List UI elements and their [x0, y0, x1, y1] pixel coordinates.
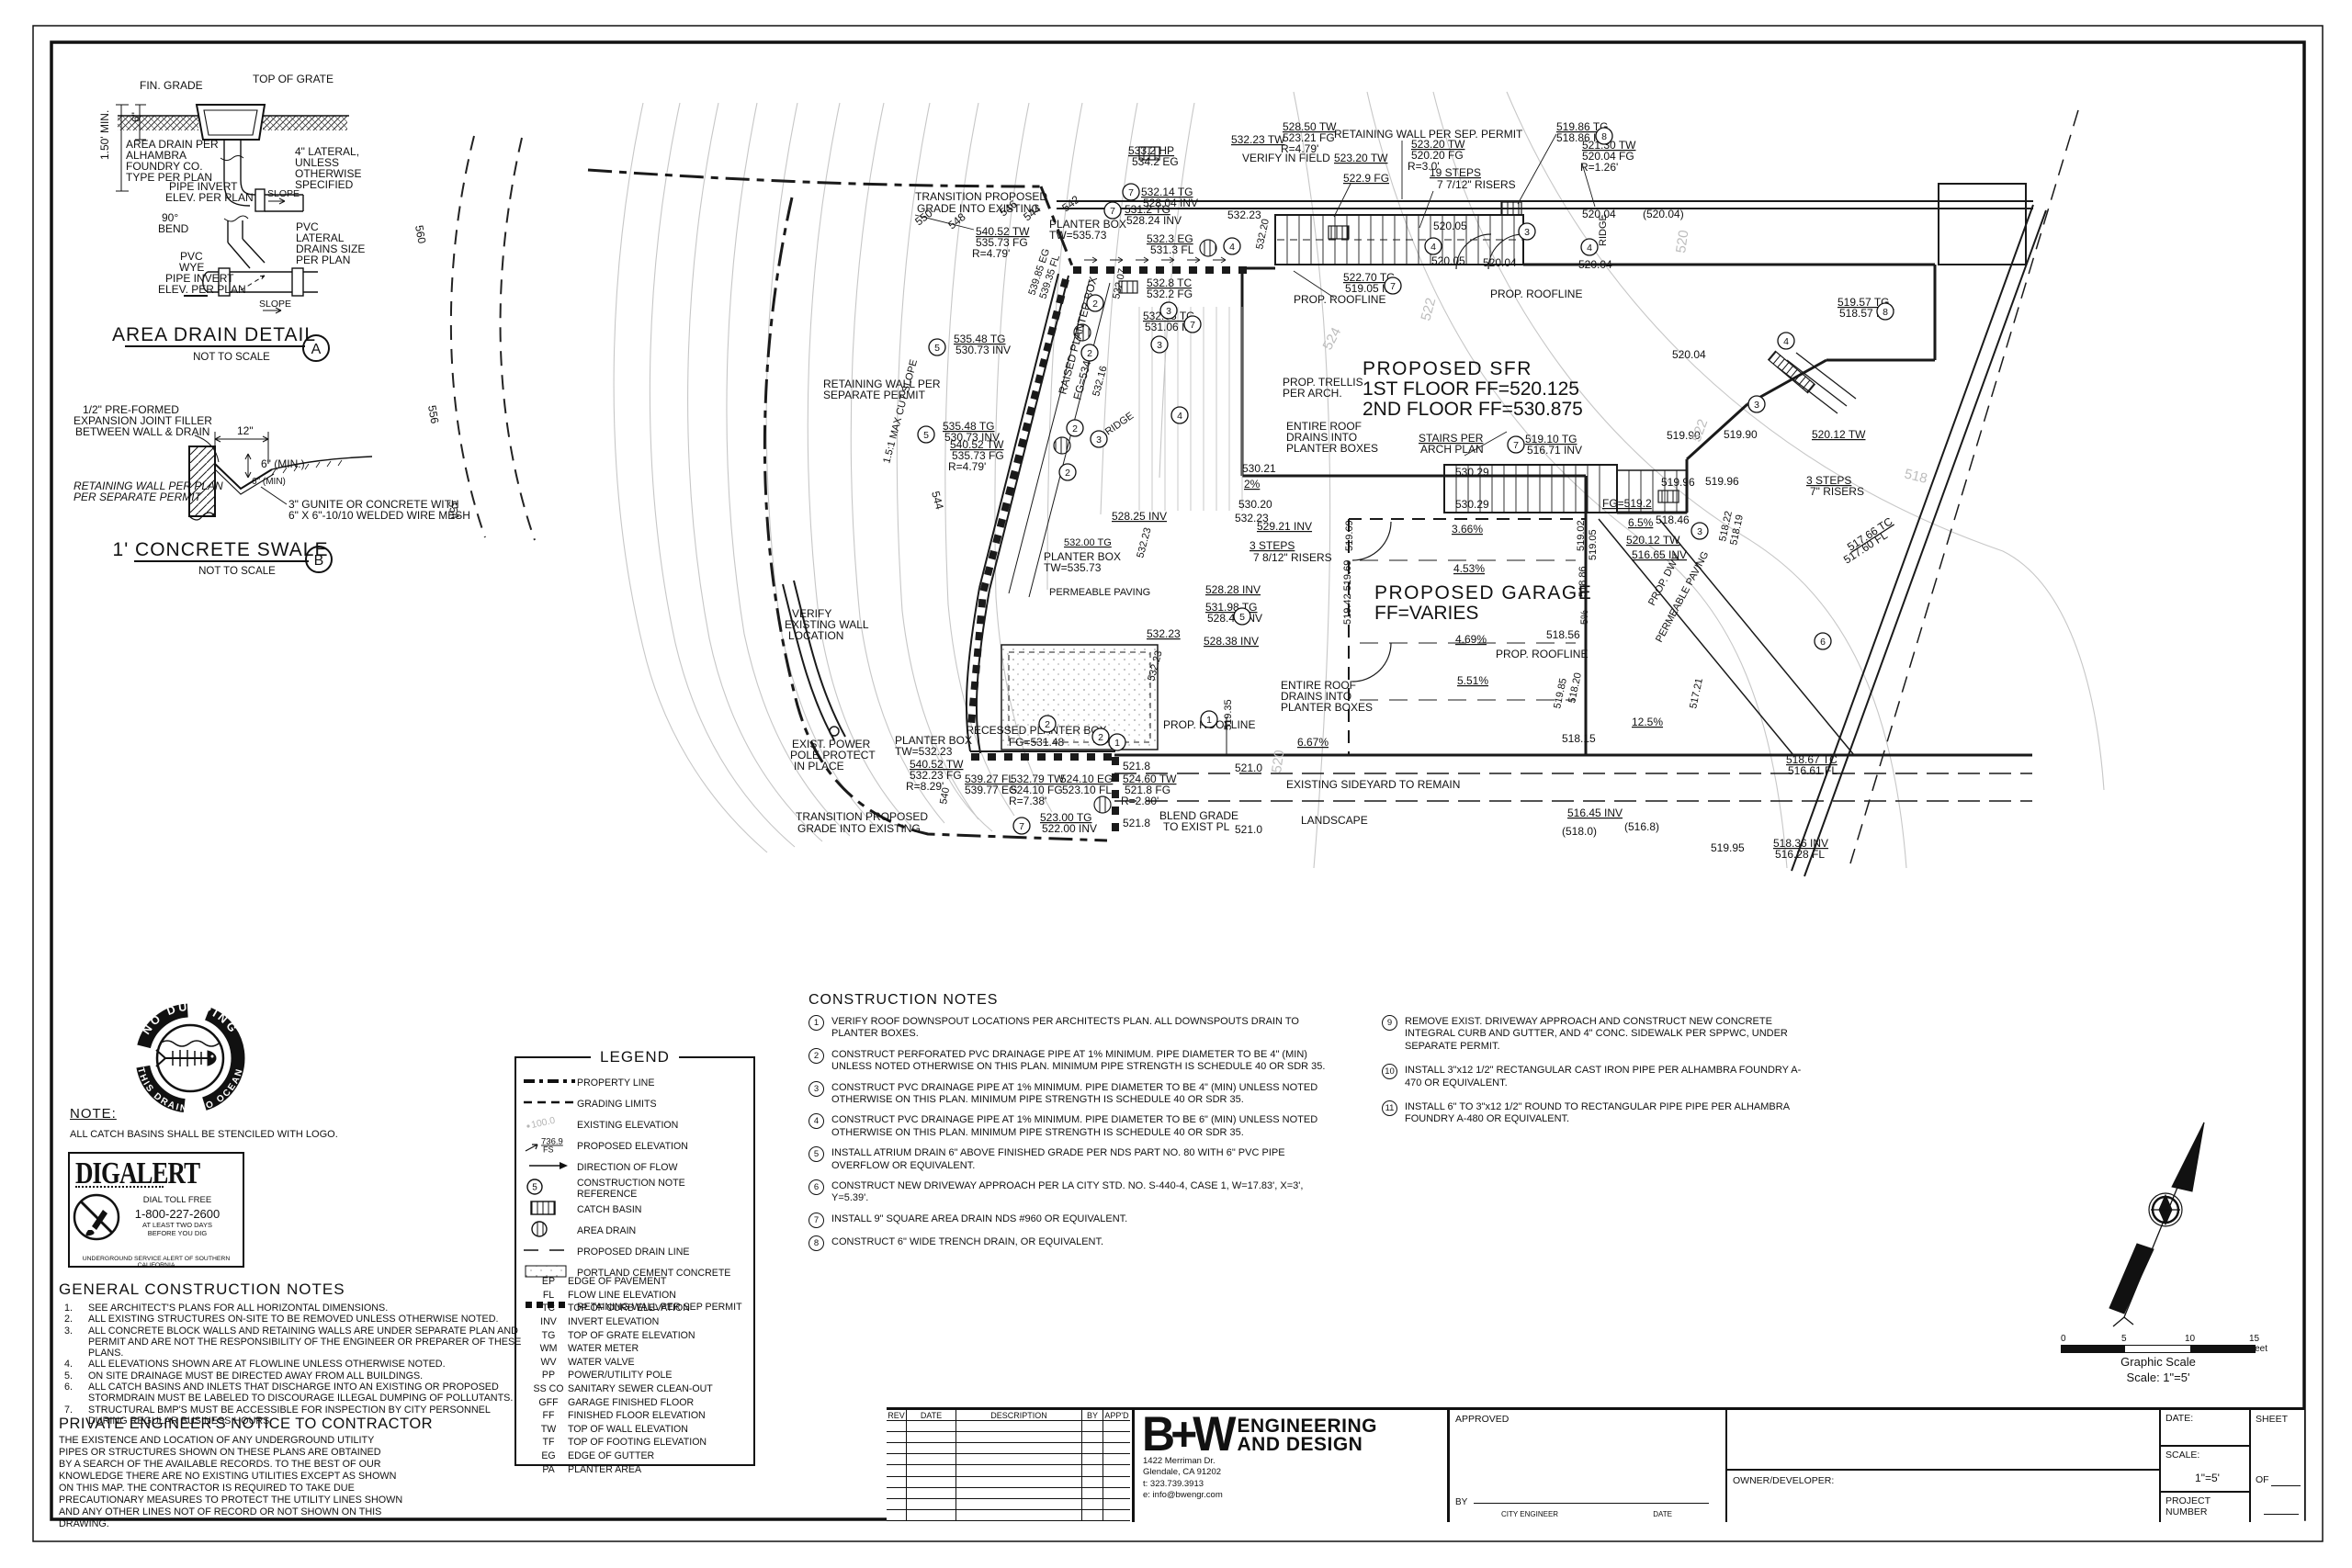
- plan-label: 521.0: [1235, 823, 1262, 836]
- svg-text:1: 1: [1114, 738, 1120, 749]
- plan-label: 520.05: [1433, 220, 1467, 232]
- plan-label: 532.23: [1227, 209, 1261, 221]
- general-note-text: SEE ARCHITECT'S PLANS FOR ALL HORIZONTAL…: [88, 1303, 527, 1314]
- general-note-number: 4.: [59, 1359, 88, 1370]
- note-ref-marker: 3: [1748, 396, 1765, 412]
- revision-table: REVDATEDESCRIPTIONBYAPP'D: [887, 1410, 1132, 1522]
- legend-item-label: PROPERTY LINE: [577, 1078, 654, 1089]
- sheet-of-line: [2271, 1485, 2301, 1486]
- construction-note-number: 6: [808, 1179, 824, 1195]
- legend-item: AREA DRAIN: [524, 1221, 750, 1242]
- note-ref-marker: 5: [929, 339, 945, 355]
- rev-cell: [1082, 1477, 1103, 1488]
- plan-label: 516.28 FL: [1775, 848, 1825, 861]
- plan-label: 518.20: [1566, 671, 1584, 704]
- note-ref-marker: 2: [1067, 420, 1083, 436]
- general-note-text: ALL CATCH BASINS AND INLETS THAT DISCHAR…: [88, 1382, 527, 1404]
- general-note-number: 3.: [59, 1325, 88, 1359]
- sheet-block: SHEET OF: [2249, 1410, 2304, 1522]
- svg-text:7: 7: [1513, 440, 1519, 451]
- plan-label: PROP. ROOFLINE: [1496, 648, 1588, 660]
- rev-cell: [956, 1499, 1082, 1510]
- note-ref-marker: 3: [1160, 302, 1177, 319]
- engineer-notice-title: PRIVATE ENGINEER'S NOTICE TO CONTRACTOR: [59, 1416, 527, 1433]
- abbreviation-key: INV: [529, 1316, 568, 1327]
- legend-abbreviation: TGTOP OF GRATE ELEVATION: [529, 1328, 750, 1342]
- notice-line: BY A SEARCH OF THE AVAILABLE RECORDS. TO…: [59, 1459, 527, 1471]
- legend-abbreviation: WVWATER VALVE: [529, 1356, 750, 1370]
- construction-note-text: INSTALL 6" TO 3"x12 1/2" ROUND TO RECTAN…: [1405, 1101, 1809, 1126]
- plan-label: 3.66%: [1452, 523, 1483, 536]
- abbreviation-key: FF: [529, 1410, 568, 1421]
- note-ref-marker: 8: [1877, 303, 1894, 320]
- digalert-box: DIGALERT DIAL TOLL FREE 1-800-227-2600 A…: [68, 1152, 244, 1268]
- approved-date-label: DATE: [1653, 1510, 1672, 1518]
- legend-item-label: CONSTRUCTION NOTE REFERENCE: [577, 1179, 696, 1199]
- svg-text:1: 1: [1206, 715, 1212, 726]
- plan-label: 6.5%: [1628, 516, 1654, 529]
- general-note-item: 1.SEE ARCHITECT'S PLANS FOR ALL HORIZONT…: [59, 1303, 555, 1314]
- construction-note-text: CONSTRUCT PVC DRAINAGE PIPE AT 1% MINIMU…: [831, 1082, 1328, 1107]
- area-drain-label: ELEV. PER PLAN: [158, 283, 246, 296]
- approved-signature-line: [1474, 1503, 1709, 1504]
- plan-label: 5.51%: [1457, 674, 1488, 687]
- plan-label: 520.12 TW: [1626, 534, 1680, 547]
- legend-symbol-pl: [524, 1073, 577, 1094]
- note-ref-marker: 2: [1081, 344, 1098, 361]
- legend-symbol-ee: 100.0: [524, 1115, 577, 1136]
- rev-header-cell: REV: [887, 1410, 907, 1421]
- legend-symbol-nr: 5: [524, 1179, 577, 1200]
- abbreviation-key: TG: [529, 1330, 568, 1341]
- rev-cell: [907, 1421, 956, 1432]
- note-ref-marker: 7: [1104, 202, 1121, 219]
- plan-label: 528.25 INV: [1112, 510, 1167, 523]
- plan-label: LANDSCAPE: [1301, 814, 1368, 827]
- plan-label: 520.12 TW: [1812, 428, 1866, 441]
- rev-cell: [907, 1432, 956, 1443]
- legend-abbreviation: TCTOP OF CURB ELEVATION: [529, 1302, 750, 1315]
- legend-item-label: EXISTING ELEVATION: [577, 1121, 678, 1131]
- legend-item-label: CATCH BASIN: [577, 1205, 641, 1215]
- abbreviation-value: TOP OF CURB ELEVATION: [568, 1303, 690, 1314]
- note-ref-marker: 1: [1201, 711, 1217, 728]
- construction-note-number: 3: [808, 1081, 824, 1097]
- abbreviation-key: FL: [529, 1290, 568, 1301]
- legend-item-label: DIRECTION OF FLOW: [577, 1163, 677, 1173]
- construction-note-number: 1: [808, 1015, 824, 1031]
- abbreviation-key: EG: [529, 1450, 568, 1461]
- construction-note-text: INSTALL 3"x12 1/2" RECTANGULAR CAST IRON…: [1405, 1065, 1809, 1089]
- plan-label: TRANSITION PROPOSED: [915, 190, 1047, 203]
- plan-label: 524: [1320, 325, 1345, 353]
- svg-text:5: 5: [1239, 612, 1245, 623]
- construction-note-item: 5INSTALL ATRIUM DRAIN 6" ABOVE FINISHED …: [808, 1147, 1396, 1172]
- note-ref-marker: 3: [1519, 223, 1535, 240]
- scale-value: Scale: 1"=5': [2061, 1371, 2256, 1384]
- construction-note-text: CONSTRUCT 6" WIDE TRENCH DRAIN, OR EQUIV…: [831, 1236, 1328, 1251]
- rev-cell: [956, 1421, 1082, 1432]
- area-drain-label: SPECIFIED: [295, 178, 354, 191]
- abbreviation-value: WATER METER: [568, 1343, 639, 1354]
- rev-cell: [907, 1443, 956, 1454]
- swale-label: 12": [237, 424, 254, 437]
- plan-label: 540: [938, 786, 952, 805]
- svg-text:FS: FS: [543, 1145, 554, 1154]
- construction-note-item: 2CONSTRUCT PERFORATED PVC DRAINAGE PIPE …: [808, 1049, 1396, 1074]
- scale-box: SCALE: 1"=5': [2161, 1447, 2249, 1493]
- note-title: NOTE:: [70, 1106, 338, 1122]
- plan-label: PERMEABLE PAVING: [1049, 587, 1150, 598]
- plan-label: 518: [1903, 466, 1928, 487]
- project-label-2: NUMBER: [2165, 1506, 2249, 1517]
- legend-symbol-gl: [524, 1094, 577, 1115]
- plan-label: 530.21: [1242, 462, 1276, 475]
- detail-a-subtitle: NOT TO SCALE: [193, 352, 270, 363]
- plan-label: 1ST FLOOR FF=520.125: [1363, 378, 1579, 400]
- general-note-number: 2.: [59, 1314, 88, 1325]
- general-note-item: 6.ALL CATCH BASINS AND INLETS THAT DISCH…: [59, 1382, 555, 1404]
- abbreviation-value: EDGE OF PAVEMENT: [568, 1276, 666, 1287]
- construction-note-text: CONSTRUCT PERFORATED PVC DRAINAGE PIPE A…: [831, 1049, 1328, 1074]
- plan-label: 518.46: [1656, 513, 1690, 526]
- legend-item-label: PROPOSED ELEVATION: [577, 1142, 688, 1152]
- plan-label: 519.95: [1711, 841, 1745, 854]
- construction-note-text: VERIFY ROOF DOWNSPOUT LOCATIONS PER ARCH…: [831, 1016, 1328, 1041]
- construction-note-number: 2: [808, 1048, 824, 1064]
- detail-a-title: AREA DRAIN DETAIL: [112, 324, 316, 345]
- notice-line: PIPES OR STRUCTURES SHOWN ON THESE PLANS…: [59, 1447, 527, 1459]
- construction-note-item: 1VERIFY ROOF DOWNSPOUT LOCATIONS PER ARC…: [808, 1016, 1396, 1041]
- legend-abbreviation: EGEDGE OF GUTTER: [529, 1450, 750, 1463]
- plan-label: FG=531.48: [1009, 736, 1065, 749]
- svg-text:3: 3: [1754, 400, 1759, 411]
- rev-header-cell: DATE: [907, 1410, 956, 1421]
- note-ref-marker: 4: [1778, 333, 1794, 349]
- plan-label: 532.23 TW: [1231, 133, 1285, 146]
- company-logo: B+W: [1142, 1413, 1232, 1456]
- svg-text:4: 4: [1783, 336, 1789, 347]
- construction-note-number: 10: [1382, 1064, 1397, 1079]
- plan-label: 521.8: [1123, 760, 1150, 773]
- plan-label: TRANSITION PROPOSED: [796, 810, 928, 823]
- digalert-when1: AT LEAST TWO DAYS: [123, 1221, 232, 1229]
- abbreviation-value: INVERT ELEVATION: [568, 1316, 659, 1327]
- plan-label: 521.0: [1235, 761, 1262, 774]
- engineer-notice: PRIVATE ENGINEER'S NOTICE TO CONTRACTOR …: [59, 1416, 527, 1530]
- svg-text:7: 7: [1128, 187, 1134, 198]
- rev-cell: [1103, 1499, 1130, 1510]
- plan-label: 12.5%: [1632, 716, 1663, 728]
- engineer-notice-body: THE EXISTENCE AND LOCATION OF ANY UNDERG…: [59, 1435, 527, 1530]
- note-ref-marker: 7: [1385, 277, 1401, 294]
- approved-by-label: BY: [1455, 1497, 1467, 1507]
- note-ref-marker: 2: [1087, 295, 1103, 311]
- plan-label: 522: [1418, 296, 1439, 322]
- plan-label: 6.67%: [1297, 736, 1329, 749]
- plan-label: 516.71 INV: [1527, 444, 1582, 457]
- legend-abbreviation: WMWATER METER: [529, 1342, 750, 1356]
- plan-label: 530.29: [1455, 466, 1489, 479]
- legend-item-label: GRADING LIMITS: [577, 1100, 657, 1110]
- notice-line: DRAWING.: [59, 1518, 527, 1530]
- plan-label: 522.9 FG: [1343, 172, 1389, 185]
- construction-note-text: CONSTRUCT NEW DRIVEWAY APPROACH PER LA C…: [831, 1180, 1328, 1205]
- plan-label: FG=519.2: [1602, 497, 1652, 510]
- area-drain-label: PER PLAN: [296, 254, 350, 266]
- plan-label: PROP. ROOFLINE: [1294, 293, 1385, 306]
- note-ref-marker: 3: [1091, 431, 1107, 447]
- construction-note-number: 5: [808, 1146, 824, 1162]
- svg-text:3: 3: [1697, 526, 1702, 537]
- svg-text:100.0: 100.0: [530, 1115, 556, 1131]
- plan-label: R=4.79': [948, 460, 986, 473]
- rev-cell: [956, 1477, 1082, 1488]
- abbreviation-value: EDGE OF GUTTER: [568, 1450, 654, 1461]
- rev-cell: [887, 1499, 907, 1510]
- rev-header-cell: BY: [1082, 1410, 1103, 1421]
- construction-note-item: 6CONSTRUCT NEW DRIVEWAY APPROACH PER LA …: [808, 1180, 1396, 1205]
- construction-note-item: 3CONSTRUCT PVC DRAINAGE PIPE AT 1% MINIM…: [808, 1082, 1396, 1107]
- approved-block: APPROVED BY CITY ENGINEER DATE: [1447, 1410, 1725, 1522]
- plan-label: FF=VARIES: [1374, 603, 1478, 624]
- area-drain-label: BEND: [158, 222, 189, 235]
- plan-label: 530.29: [1455, 498, 1489, 511]
- plan-label: 7 8/12" RISERS: [1253, 551, 1332, 564]
- note-text: ALL CATCH BASINS SHALL BE STENCILED WITH…: [70, 1129, 338, 1140]
- rev-cell: [1103, 1432, 1130, 1443]
- svg-text:2: 2: [1092, 299, 1098, 310]
- scale-bar: [2061, 1345, 2256, 1353]
- svg-text:7: 7: [1190, 320, 1195, 331]
- legend-symbol-pe: 736.9FS: [524, 1136, 577, 1157]
- construction-note-item: 9REMOVE EXIST. DRIVEWAY APPROACH AND CON…: [1382, 1016, 1823, 1053]
- plan-label: 5%: [1579, 610, 1590, 625]
- general-construction-notes: GENERAL CONSTRUCTION NOTES 1.SEE ARCHITE…: [59, 1280, 555, 1427]
- general-note-text: ALL EXISTING STRUCTURES ON-SITE TO BE RE…: [88, 1314, 527, 1325]
- plan-label: 517.21: [1688, 677, 1705, 709]
- swale-label: PER SEPARATE PERMIT: [73, 491, 203, 503]
- plan-label: RIDGE: [1103, 411, 1136, 438]
- plan-label: 534.2 EG: [1132, 155, 1179, 168]
- plan-label: PLANTER BOXES: [1281, 701, 1373, 714]
- abbreviation-value: WATER VALVE: [568, 1357, 635, 1368]
- general-notes-list: 1.SEE ARCHITECT'S PLANS FOR ALL HORIZONT…: [59, 1303, 555, 1427]
- abbreviation-value: GARAGE FINISHED FLOOR: [568, 1397, 694, 1408]
- rev-header-cell: APP'D: [1103, 1410, 1130, 1421]
- rev-cell: [956, 1510, 1082, 1521]
- construction-note-item: 10INSTALL 3"x12 1/2" RECTANGULAR CAST IR…: [1382, 1065, 1823, 1089]
- area-drain-label: TOP OF GRATE: [253, 73, 334, 85]
- svg-text:3: 3: [1096, 434, 1102, 446]
- rev-cell: [907, 1488, 956, 1499]
- rev-cell: [1103, 1510, 1130, 1521]
- rev-cell: [1103, 1465, 1130, 1476]
- grading-plan-sheet: AREA DRAIN DETAIL NOT TO SCALE A 1' CONC…: [0, 0, 2352, 1568]
- rev-cell: [956, 1488, 1082, 1499]
- scale-tick-label: 0: [2061, 1334, 2066, 1344]
- approved-label: APPROVED: [1455, 1414, 1509, 1425]
- area-drain-label: 1.50' MIN.: [98, 110, 111, 160]
- plan-label: 518.86: [1577, 566, 1589, 597]
- rev-cell: [1103, 1488, 1130, 1499]
- plan-label: R=4.79': [972, 247, 1010, 260]
- svg-text:5: 5: [934, 343, 940, 354]
- rev-cell: [887, 1421, 907, 1432]
- general-note-item: 3.ALL CONCRETE BLOCK WALLS AND RETAINING…: [59, 1325, 555, 1359]
- construction-note-item: 4CONSTRUCT PVC DRAINAGE PIPE AT 1% MINIM…: [808, 1114, 1396, 1139]
- rev-cell: [907, 1499, 956, 1510]
- company-address-line: t: 323.739.3913: [1143, 1479, 1447, 1490]
- owner-label: OWNER/DEVELOPER:: [1727, 1471, 2159, 1486]
- plan-label: 519.96: [1661, 476, 1695, 489]
- svg-text:8: 8: [1601, 131, 1607, 142]
- rev-cell: [1082, 1432, 1103, 1443]
- rev-cell: [887, 1432, 907, 1443]
- abbreviation-value: POWER/UTILITY POLE: [568, 1370, 672, 1381]
- plan-label: 2ND FLOOR FF=530.875: [1363, 399, 1583, 420]
- legend-item: CATCH BASIN: [524, 1200, 750, 1221]
- svg-text:6: 6: [1820, 637, 1826, 648]
- plan-label: 520: [1673, 229, 1691, 254]
- plan-label: 519.96: [1705, 475, 1739, 488]
- plan-label: EXISTING SIDEYARD TO REMAIN: [1286, 778, 1460, 791]
- notice-line: PRECAUTIONARY MEASURES TO PROTECT THE UT…: [59, 1495, 527, 1506]
- note-ref-marker: 3: [1691, 523, 1708, 539]
- general-note-number: 5.: [59, 1371, 88, 1382]
- legend-abbreviation: EPEDGE OF PAVEMENT: [529, 1275, 750, 1289]
- detail-a-badge: A: [311, 342, 322, 357]
- legend-item: 5CONSTRUCTION NOTE REFERENCE: [524, 1179, 750, 1200]
- general-note-number: 1.: [59, 1303, 88, 1314]
- legend-symbol-dl: [524, 1242, 577, 1263]
- graphic-scale: 051015 Feet Graphic Scale Scale: 1"=5': [2061, 1334, 2268, 1385]
- company-name-1: ENGINEERING: [1238, 1417, 1378, 1436]
- legend-item: 100.0EXISTING ELEVATION: [524, 1115, 750, 1136]
- plan-label: 532.2 FG: [1147, 288, 1193, 300]
- notice-line: THE EXISTENCE AND LOCATION OF ANY UNDERG…: [59, 1435, 527, 1447]
- rev-cell: [907, 1477, 956, 1488]
- rev-cell: [1082, 1465, 1103, 1476]
- date-scale-project-block: DATE: SCALE: 1"=5' PROJECT NUMBER: [2159, 1410, 2249, 1522]
- svg-text:2: 2: [1045, 719, 1050, 730]
- plan-label: R=2.80': [1121, 795, 1159, 807]
- plan-label: 542: [1059, 193, 1082, 215]
- scale-caption: Graphic Scale: [2061, 1356, 2256, 1369]
- note-ref-marker: 4: [1581, 239, 1598, 255]
- plan-label: TW=535.73: [1044, 561, 1102, 574]
- svg-text:4: 4: [1587, 243, 1592, 254]
- swale-label: 6" X 6"-10/10 WELDED WIRE MESH: [288, 509, 470, 522]
- note-ref-marker: 1: [1109, 734, 1125, 750]
- owner-top-box: [1727, 1410, 2159, 1471]
- area-drain-label: 6": [130, 112, 142, 122]
- detail-b-badge: B: [314, 553, 324, 569]
- svg-text:7: 7: [1110, 206, 1115, 217]
- plan-label: 530.73 INV: [955, 344, 1011, 356]
- area-drain-label: FIN. GRADE: [140, 79, 203, 92]
- plan-label: 7" RISERS: [1810, 485, 1864, 498]
- construction-notes-left: 1VERIFY ROOF DOWNSPOUT LOCATIONS PER ARC…: [808, 1016, 1396, 1259]
- plan-label: PER ARCH.: [1283, 387, 1342, 400]
- legend-item: GRADING LIMITS: [524, 1094, 750, 1115]
- rev-cell: [956, 1432, 1082, 1443]
- svg-text:8: 8: [1883, 307, 1888, 318]
- plan-label: 3 STEPS: [1249, 539, 1295, 552]
- legend-abbreviation: TWTOP OF WALL ELEVATION: [529, 1423, 750, 1437]
- svg-text:4: 4: [1430, 242, 1436, 253]
- construction-notes-right: 9REMOVE EXIST. DRIVEWAY APPROACH AND CON…: [1382, 1016, 1823, 1138]
- plan-label: 520.04: [1578, 258, 1612, 271]
- note-ref-marker: 2: [1092, 728, 1109, 745]
- plan-label: 520: [1269, 749, 1287, 773]
- plan-label: R=1.26': [1580, 161, 1618, 174]
- abbreviation-key: TC: [529, 1303, 568, 1314]
- svg-text:7: 7: [1390, 281, 1396, 292]
- plan-label: TO EXIST PL: [1163, 820, 1230, 833]
- legend-item: PROPERTY LINE: [524, 1073, 750, 1094]
- rev-cell: [1082, 1510, 1103, 1521]
- abbreviation-value: TOP OF WALL ELEVATION: [568, 1424, 688, 1435]
- grading-limit-lines: [451, 136, 535, 540]
- rev-cell: [1103, 1454, 1130, 1465]
- svg-text:3: 3: [1524, 227, 1530, 238]
- scale-tick-label: 10: [2185, 1334, 2195, 1344]
- note-ref-marker: 7: [1123, 184, 1139, 200]
- note-ref-marker: 7: [1013, 818, 1030, 834]
- plan-label: 518.15: [1562, 732, 1596, 745]
- swale-label: BETWEEN WALL & DRAIN: [75, 425, 209, 438]
- plan-label: 1.5:1 MAX CUT SLOPE: [881, 358, 920, 465]
- general-notes-title: GENERAL CONSTRUCTION NOTES: [59, 1280, 555, 1299]
- sheet-label: SHEET: [2256, 1414, 2288, 1425]
- plan-label: R=7.38': [1009, 795, 1046, 807]
- note-ref-marker: 2: [1059, 464, 1076, 480]
- plan-label: 532.23: [1147, 627, 1181, 640]
- area-drain-label: SLOPE: [267, 188, 300, 199]
- abbreviation-value: PLANTER AREA: [568, 1464, 641, 1475]
- legend-abbreviation: PPPOWER/UTILITY POLE: [529, 1369, 750, 1382]
- plan-label: 516.61 FL: [1788, 764, 1837, 777]
- catch-basin-note: NOTE: ALL CATCH BASINS SHALL BE STENCILE…: [70, 1106, 338, 1140]
- scale-tick-label: 5: [2121, 1334, 2127, 1344]
- owner-block: OWNER/DEVELOPER:: [1725, 1410, 2159, 1522]
- abbreviation-key: TF: [529, 1437, 568, 1448]
- city-engineer-label: CITY ENGINEER: [1501, 1510, 1558, 1518]
- construction-note-item: 11INSTALL 6" TO 3"x12 1/2" ROUND TO RECT…: [1382, 1101, 1823, 1126]
- company-address-line: e: info@bwengr.com: [1143, 1490, 1447, 1501]
- svg-text:5: 5: [532, 1182, 537, 1192]
- abbreviation-value: TOP OF GRATE ELEVATION: [568, 1330, 695, 1341]
- rev-cell: [887, 1443, 907, 1454]
- scale-box-value: 1"=5': [2165, 1472, 2249, 1484]
- rev-cell: [887, 1454, 907, 1465]
- swale-label: 6" (MIN): [252, 477, 286, 487]
- abbreviation-key: SS CO: [529, 1383, 568, 1394]
- abbreviation-value: SANITARY SEWER CLEAN-OUT: [568, 1383, 713, 1394]
- plan-label: 530.20: [1238, 498, 1272, 511]
- note-ref-marker: 7: [1508, 436, 1524, 453]
- construction-note-text: REMOVE EXIST. DRIVEWAY APPROACH AND CONS…: [1405, 1016, 1809, 1053]
- svg-text:2: 2: [1087, 348, 1092, 359]
- abbreviation-value: FLOW LINE ELEVATION: [568, 1290, 676, 1301]
- plan-label: 19 STEPS: [1430, 166, 1481, 179]
- general-note-item: 4.ALL ELEVATIONS SHOWN ARE AT FLOWLINE U…: [59, 1359, 555, 1370]
- area-drain-label: SLOPE: [259, 299, 291, 310]
- note-ref-marker: 4: [1224, 238, 1240, 254]
- rev-cell: [887, 1465, 907, 1476]
- no-dig-icon: [70, 1190, 123, 1251]
